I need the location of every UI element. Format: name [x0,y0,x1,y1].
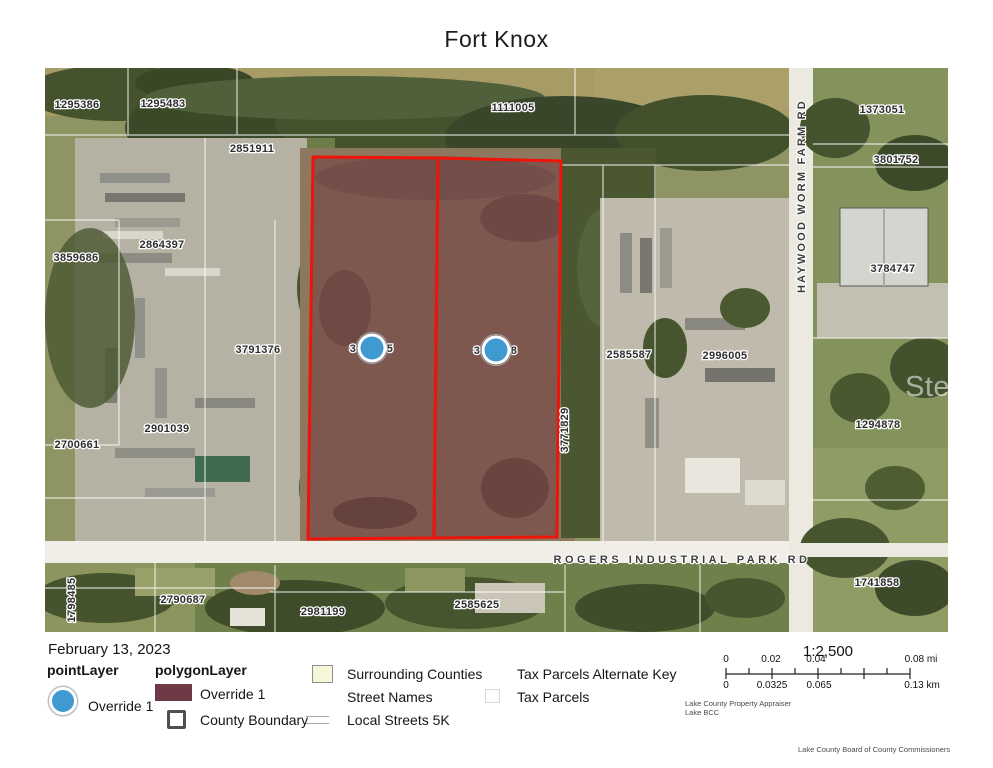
polygon-override-symbol [155,684,192,701]
county-attribution: Lake County Board of County Commissioner… [798,745,950,754]
parcel-label: 2981199 [301,606,345,618]
polygon-override-label: Override 1 [200,686,265,702]
page-title: Fort Knox [0,26,993,53]
scale-km-labels: 00.03250.0650.13 km [716,680,986,692]
parcel-label: 1294878 [856,419,901,431]
parcel-label: 2851911 [230,143,274,155]
county-boundary-symbol [167,710,186,729]
parcel-label: 3859686 [54,252,99,264]
parcel-label: 2585587 [607,349,652,361]
parcel-label: 1295386 [55,99,100,111]
parcel-label: 2790687 [161,594,206,606]
tax-parcels-symbol [485,689,500,703]
scale-mi-label: 0 [723,654,729,665]
tax-parcels-label: Tax Parcels [517,689,589,705]
parcel-label: 1798485 [66,578,78,623]
parcel-label: 3784747 [871,263,916,275]
polygon-layer-heading: polygonLayer [155,662,247,678]
appraiser-attribution: Lake County Property Appraiser Lake BCC [685,700,791,717]
parcel-label: 3 [350,343,356,355]
scalebar [716,666,926,681]
point-layer-symbol [49,687,77,715]
parcel-label: 1111005 [491,102,534,114]
appraiser-attribution-line2: Lake BCC [685,709,791,718]
parcel-label: 2864397 [140,239,185,251]
parcel-label: 1373051 [860,104,905,116]
parcel-label: 1741858 [855,577,900,589]
stellar-mls-watermark: StellarMLS [905,371,993,404]
map-date: February 13, 2023 [48,641,171,658]
scale-km-label: 0 [723,680,729,691]
surrounding-counties-symbol [312,665,333,683]
parcel-label: 2700661 [55,439,100,451]
scale-mi-label: 0.04 [806,654,825,665]
parcel-label: 3791376 [236,344,281,356]
parcel-label: 3801752 [874,154,919,166]
parcel-label: 3 [474,345,480,357]
tax-parcels-alt-key-label: Tax Parcels Alternate Key [517,666,677,682]
map-export-page: { "title": "Fort Knox", "watermark": "St… [0,0,993,768]
road-label: HAYWOOD WORM FARM RD [796,99,808,293]
point-marker[interactable] [485,339,508,362]
road-label: ROGERS INDUSTRIAL PARK RD [554,554,811,566]
map-view[interactable]: 3538129538612954831111005137305128519113… [45,68,948,632]
point-layer-item-label: Override 1 [88,698,153,714]
scale-mi-label: 0.08 mi [905,654,938,665]
parcel-label: 2996005 [703,350,748,362]
scale-mi-labels: 00.020.040.08 mi [716,654,986,666]
parcel-label: 1295483 [141,98,186,110]
scale-km-label: 0.13 km [904,680,940,691]
scale-km-label: 0.0325 [757,680,788,691]
local-streets-label: Local Streets 5K [347,712,450,728]
parcel-label: 2901039 [145,423,190,435]
parcel-label: 3771829 [559,408,571,453]
local-streets-symbol [306,716,329,724]
surrounding-counties-label: Surrounding Counties [347,666,482,682]
parcel-label: 2585625 [455,599,500,611]
scale-km-label: 0.065 [806,680,831,691]
county-boundary-label: County Boundary [200,712,308,728]
point-layer-heading: pointLayer [47,662,119,678]
street-names-label: Street Names [347,689,433,705]
scale-mi-label: 0.02 [761,654,780,665]
point-marker[interactable] [361,337,384,360]
